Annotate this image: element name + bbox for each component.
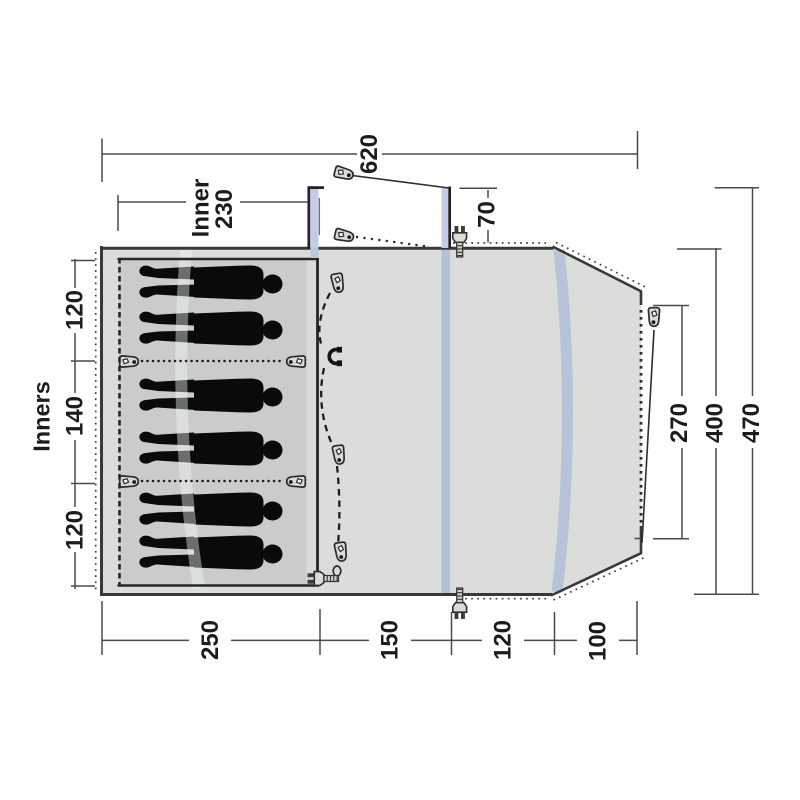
svg-text:140: 140 [62, 396, 89, 436]
svg-text:70: 70 [474, 201, 501, 228]
svg-text:120: 120 [62, 510, 89, 550]
svg-text:100: 100 [585, 621, 612, 661]
svg-text:270: 270 [666, 403, 693, 443]
svg-text:250: 250 [197, 620, 224, 660]
svg-text:Inners: Inners [29, 381, 55, 452]
svg-text:230: 230 [211, 189, 238, 229]
svg-text:120: 120 [62, 290, 89, 330]
svg-text:620: 620 [356, 134, 383, 174]
svg-text:470: 470 [738, 403, 765, 443]
svg-text:120: 120 [490, 620, 517, 660]
svg-text:150: 150 [377, 620, 404, 660]
svg-text:400: 400 [702, 403, 729, 443]
